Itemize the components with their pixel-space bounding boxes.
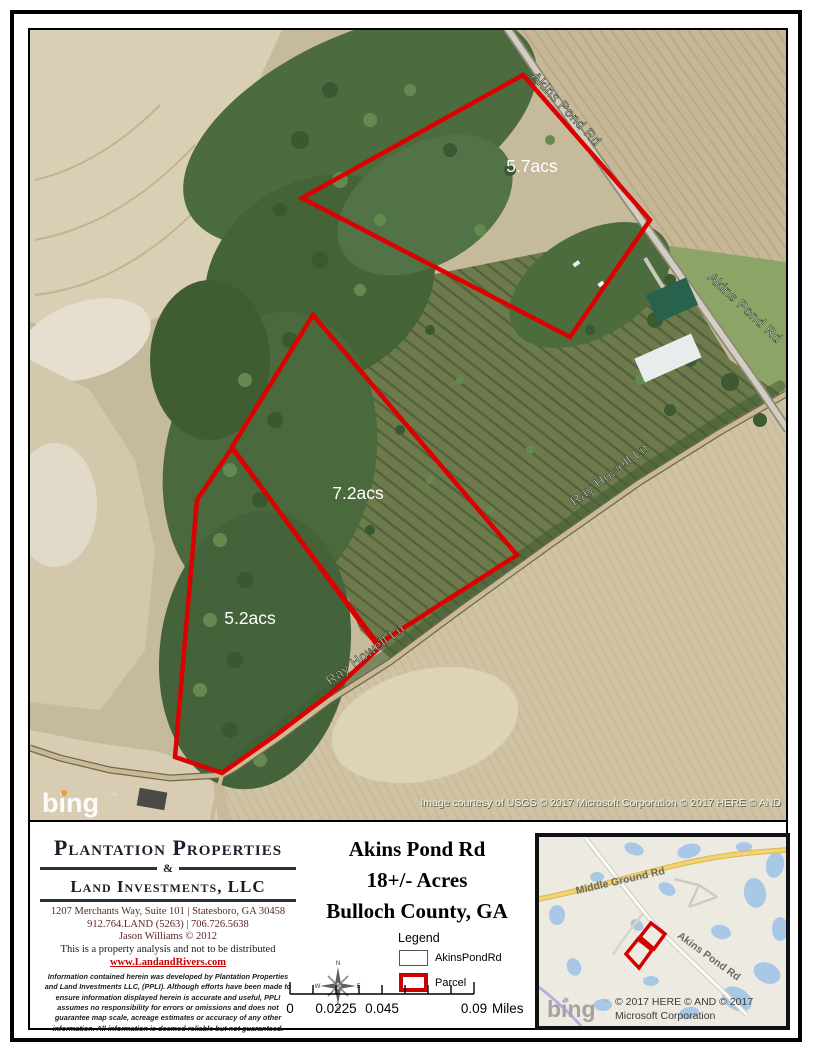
title-acres: 18+/- Acres bbox=[300, 865, 534, 896]
inset-bing-tm: ™ bbox=[603, 998, 609, 1005]
acreage-label-7-2: 7.2acs bbox=[332, 483, 384, 503]
aerial-map: 5.7acs 7.2acs 5.2acs Akins Pond Rd Akins… bbox=[28, 28, 788, 822]
company-credit: Jason Williams © 2012 bbox=[40, 931, 296, 944]
map-attribution: Image courtesy of USGS © 2017 Microsoft … bbox=[420, 797, 781, 809]
rule-left bbox=[40, 867, 157, 870]
inset-locator-map: Middle Ground Rd Akins Pond Rd bing ™ © … bbox=[535, 833, 790, 1030]
scale-unit: Miles bbox=[492, 1001, 524, 1016]
aerial-map-canvas: 5.7acs 7.2acs 5.2acs Akins Pond Rd Akins… bbox=[30, 30, 786, 820]
company-name-line2: Land Investments, LLC bbox=[40, 877, 296, 896]
rule-right bbox=[179, 867, 296, 870]
road-symbol bbox=[399, 950, 428, 966]
logo-rule-bottom bbox=[40, 899, 296, 902]
inset-copyright-1: © 2017 HERE © AND © 2017 bbox=[615, 996, 753, 1008]
scale-quarter: 0.0225 bbox=[315, 1001, 356, 1016]
inset-copyright-2: Microsoft Corporation bbox=[615, 1010, 716, 1022]
company-ampersand: & bbox=[163, 861, 173, 876]
disclaimer-text: Information contained herein was develop… bbox=[42, 972, 294, 1034]
logo-rule-amp: & bbox=[40, 861, 296, 876]
scale-0: 0 bbox=[286, 1001, 294, 1016]
inset-bing-dot bbox=[563, 997, 568, 1002]
scale-bar: 0 0.0225 0.045 0.09 Miles bbox=[286, 980, 538, 1031]
bing-logo-text: bing bbox=[42, 788, 99, 818]
company-note: This is a property analysis and not to b… bbox=[40, 944, 296, 957]
scale-full: 0.09 bbox=[461, 1001, 487, 1016]
compass-n: N bbox=[336, 961, 340, 967]
property-flyer-page: 5.7acs 7.2acs 5.2acs Akins Pond Rd Akins… bbox=[0, 0, 816, 1056]
bing-tm: ™ bbox=[110, 793, 117, 800]
legend-title: Legend bbox=[398, 931, 440, 945]
legend-label-road: AkinsPondRd bbox=[435, 952, 502, 964]
title-county: Bulloch County, GA bbox=[300, 896, 534, 927]
legend-item-road: AkinsPondRd bbox=[399, 950, 502, 966]
acreage-label-5-7: 5.7acs bbox=[506, 156, 558, 176]
company-phone: 912.764.LAND (5263) | 706.726.5638 bbox=[40, 919, 296, 932]
scale-half: 0.045 bbox=[365, 1001, 399, 1016]
title-road: Akins Pond Rd bbox=[300, 834, 534, 865]
inset-bing-logo: bing bbox=[547, 996, 596, 1022]
company-address: 1207 Merchants Way, Suite 101 | Statesbo… bbox=[40, 906, 296, 919]
acreage-label-5-2: 5.2acs bbox=[224, 608, 276, 628]
company-block: Plantation Properties & Land Investments… bbox=[40, 836, 296, 970]
website-link[interactable]: www.LandandRivers.com bbox=[110, 957, 226, 970]
map-title: Akins Pond Rd 18+/- Acres Bulloch County… bbox=[300, 834, 534, 927]
bing-logo-dot bbox=[61, 790, 67, 796]
company-name-line1: Plantation Properties bbox=[40, 836, 296, 860]
